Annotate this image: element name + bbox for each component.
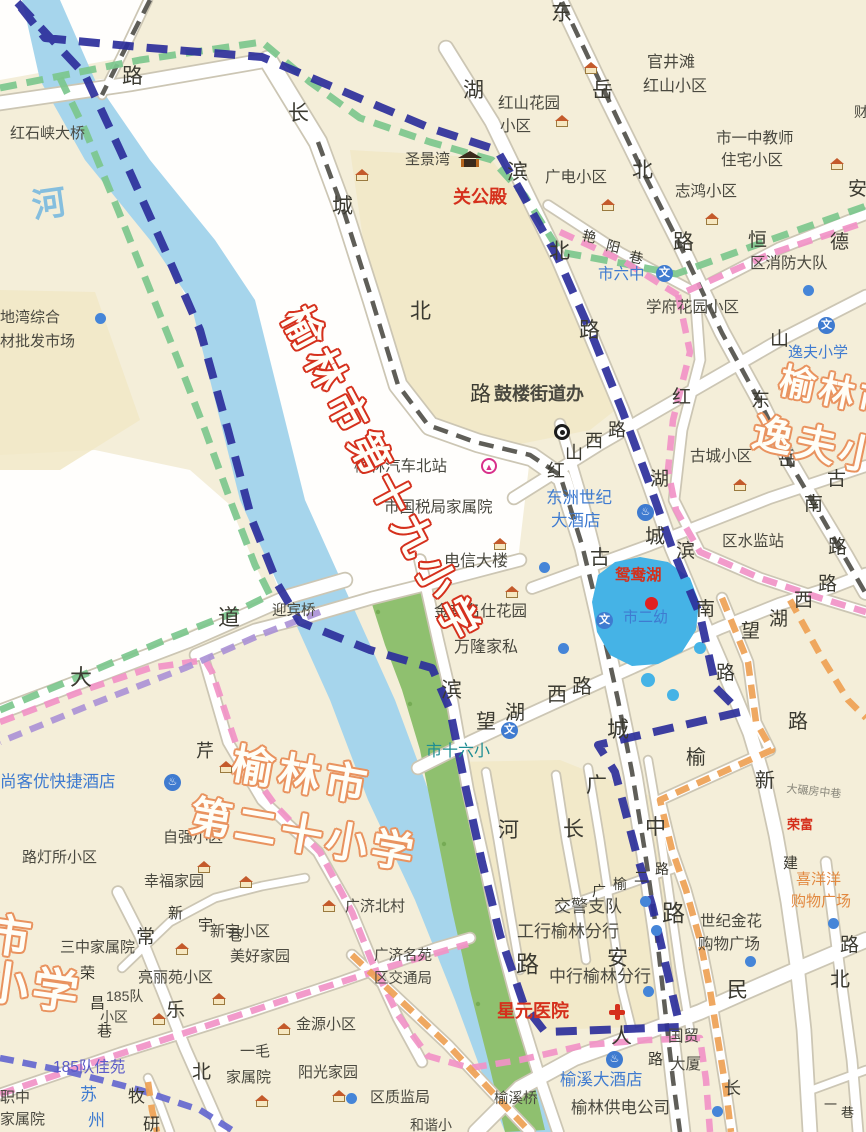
road-name-label: 路 (818, 575, 837, 595)
poi-label: 红石峡大桥 (10, 126, 85, 142)
road-name-label: 长 (288, 103, 309, 125)
building-icon (176, 948, 188, 955)
road-name-label: 湖 (505, 703, 525, 724)
poi-label: 市六中 (598, 267, 645, 283)
poi-label: 幸福家园 (144, 874, 204, 890)
poi-label: 金源小区 (296, 1017, 356, 1033)
hotel-icon: ♨ (606, 1051, 623, 1068)
road-name-label: 湖 (463, 80, 484, 102)
poi-label: 迎宾桥 (272, 604, 316, 619)
poi-label: 阳光家园 (298, 1065, 358, 1081)
road-name-label: 民 (727, 980, 748, 1002)
road-name-label: 城 (607, 718, 629, 741)
school-icon: 文 (596, 612, 613, 629)
building-icon (556, 120, 568, 127)
poi-label: 东洲世纪 (546, 490, 612, 507)
poi-label: 官井滩 (647, 55, 695, 72)
road-name-label: 路 (662, 901, 685, 925)
hospital-cross-icon (609, 1004, 625, 1020)
road-name-label: 望 (476, 712, 496, 733)
road-name-label: 南 (804, 495, 823, 515)
road-name-label: 滨 (441, 680, 462, 702)
building-icon (220, 766, 232, 773)
poi-label: 材批发市场 (0, 334, 75, 350)
road-name-label: 路 (655, 862, 669, 877)
park-texture-dot (376, 610, 380, 614)
building-icon (278, 1028, 290, 1035)
poi-label: 区交通局 (374, 972, 432, 987)
hotel-icon: ♨ (164, 774, 181, 791)
poi-dot (745, 956, 756, 967)
poi-label: 美好家园 (230, 949, 290, 965)
poi-label: 荣富 (787, 818, 813, 832)
road-name-label: 研 (143, 1116, 160, 1132)
road-name-label: 大 (70, 666, 92, 689)
building-icon (585, 67, 597, 74)
school-icon: 文 (501, 722, 518, 739)
road-name-label: 一 (824, 1098, 837, 1112)
road-name-label: 山 (565, 444, 583, 463)
poi-label: 鼓楼街道办 (494, 385, 584, 404)
poi-label: 区消防大队 (750, 256, 828, 272)
poi-label: 和谐小 (410, 1118, 452, 1132)
road-name-label: 巷 (841, 1106, 854, 1120)
building-icon (356, 174, 368, 181)
poi-label: 志鸿小区 (675, 184, 737, 200)
poi-label: 喜洋洋 (796, 872, 841, 888)
poi-dot (558, 643, 569, 654)
road-name-label: 古 (590, 548, 610, 569)
park-texture-dot (408, 702, 412, 706)
road-name-label: 广 (586, 775, 607, 797)
park-texture-dot (442, 842, 446, 846)
poi-label: 三中家属院 (60, 940, 135, 956)
road-name-label: 红 (672, 388, 691, 408)
poi-label: 区质监局 (370, 1090, 430, 1106)
poi-label: 榆溪大酒店 (560, 1072, 643, 1089)
poi-dot (712, 1106, 723, 1117)
lake-pond (667, 689, 679, 701)
lake-pond (694, 642, 706, 654)
poi-label: 河 (30, 185, 69, 225)
road-name-label: 山 (770, 330, 789, 350)
poi-label: 大酒店 (551, 513, 601, 530)
road-name-label: 德 (830, 233, 849, 253)
poi-dot (803, 285, 814, 296)
poi-label: 中行榆林分行 (549, 968, 651, 986)
bus-station-icon: ▲ (481, 458, 497, 474)
poi-label: 家属院 (0, 1112, 45, 1128)
road-name-label: 路 (122, 66, 143, 88)
road-name-label: 人 (611, 1026, 632, 1048)
road-name-label: 路 (828, 538, 847, 558)
poi-label: 榆溪桥 (494, 1092, 538, 1107)
road-name-label: 榆 (686, 748, 706, 769)
building-icon (198, 866, 210, 873)
road-name-label: 路 (788, 712, 808, 733)
road-name-label: 长 (724, 1080, 741, 1098)
road-name-label: 路 (608, 421, 626, 440)
poi-label: 职中 (0, 1090, 30, 1106)
road-name-label: 城 (645, 527, 665, 548)
poi-dot (651, 925, 662, 936)
road-name-label: 牧 (128, 1088, 145, 1106)
road-name-label: 西 (794, 591, 813, 611)
poi-label: 广济北村 (345, 899, 405, 915)
building-icon (256, 1100, 268, 1107)
road-name-label: 长 (563, 819, 584, 841)
road-name-label: 西 (547, 685, 567, 706)
road-name-label: 新 (755, 771, 775, 792)
building-icon (213, 998, 225, 1005)
road-name-label: 巷 (97, 1024, 112, 1040)
road-name-label: 恒 (748, 231, 767, 251)
road-name-label: 路 (516, 952, 539, 976)
road-name-label: 安 (848, 180, 866, 200)
poi-label: 财 (854, 105, 866, 120)
road-name-label: 路 (840, 936, 859, 956)
building-icon (831, 163, 843, 170)
poi-label: 新宇小区 (210, 924, 270, 940)
poi-label: 185队 (106, 989, 143, 1004)
road-name-label: 北 (410, 301, 431, 323)
poi-label: 红山小区 (643, 79, 707, 96)
poi-dot (640, 896, 651, 907)
building-icon (734, 484, 746, 491)
road-name-label: 二 (634, 870, 648, 885)
government-office-icon (554, 424, 570, 440)
road-name-label: 路 (572, 677, 592, 698)
building-icon (240, 881, 252, 888)
poi-label: 购物广场 (791, 894, 851, 910)
poi-label: 亮丽苑小区 (138, 970, 213, 986)
hotel-icon: ♨ (637, 504, 654, 521)
road-name-label: 路 (648, 1052, 663, 1068)
road-name-label: 北 (192, 1063, 211, 1083)
poi-label: 区水监站 (722, 534, 784, 550)
building-icon (494, 543, 506, 550)
poi-label: 185队佳苑 (53, 1060, 125, 1076)
park-texture-dot (476, 1002, 480, 1006)
poi-label: 大厦 (670, 1057, 701, 1073)
poi-label: 国贸 (668, 1029, 699, 1045)
poi-dot (828, 918, 839, 929)
road-name-label: 湖 (769, 610, 788, 630)
building-icon (602, 204, 614, 211)
school-district-overlay-label: 小学 (0, 945, 87, 1024)
building-icon (506, 591, 518, 598)
road-name-label: 路 (579, 320, 600, 342)
building-icon (153, 1018, 165, 1025)
lake-pond (641, 673, 655, 687)
poi-dot (539, 562, 550, 573)
poi-label: 星元医院 (497, 1002, 569, 1021)
poi-label: 小区 (500, 119, 531, 135)
poi-label: 苏 (80, 1086, 97, 1104)
poi-label: 鸳鸯湖 (615, 568, 662, 584)
school-icon: 文 (818, 317, 835, 334)
poi-label: 路灯所小区 (22, 850, 97, 866)
poi-label: 榆林供电公司 (571, 1100, 670, 1117)
city-map[interactable]: 路长城北路东岳北路湖滨北路红山红山西路古城古湖滨南路东岳南路恒德安滨河路城广长中… (0, 0, 866, 1132)
road-name-label: 南 (696, 600, 715, 620)
temple-icon (457, 153, 483, 167)
poi-label: 市二幼 (623, 610, 668, 626)
poi-label: 住宅小区 (721, 153, 783, 169)
road-name-label: 城 (332, 196, 353, 218)
road-name-label: 东 (551, 3, 572, 25)
poi-label: 市十六小 (426, 744, 490, 761)
road-name-label: 湖 (650, 470, 669, 490)
poi-label: 学府花园小区 (646, 300, 739, 316)
poi-dot (643, 986, 654, 997)
road-name-label: 建 (783, 856, 798, 872)
road-name-label: 新 (168, 906, 183, 922)
road-name-label: 西 (585, 432, 603, 451)
road-name-label: 北 (632, 160, 653, 182)
poi-label: 一毛 (240, 1044, 270, 1060)
poi-label: 购物广场 (698, 937, 760, 953)
road-name-label: 望 (741, 622, 760, 642)
road-name-label: 河 (498, 820, 519, 842)
poi-label: 工行榆林分行 (517, 923, 619, 941)
road-name-label: 中 (645, 817, 666, 839)
road-name-label: 芹 (196, 742, 214, 761)
building-icon (333, 1095, 345, 1102)
poi-label: 尚客优快捷酒店 (0, 774, 116, 791)
road-name-label: 北 (549, 241, 570, 263)
poi-label: 圣景湾 (405, 152, 450, 168)
poi-label: 世纪金花 (700, 914, 762, 930)
poi-label: 小区 (100, 1010, 128, 1025)
poi-label: 地湾综合 (0, 310, 60, 326)
building-icon (706, 218, 718, 225)
lake-marker-dot (645, 597, 658, 610)
road-name-label: 路 (673, 232, 694, 254)
road-name-label: 红 (547, 462, 565, 481)
poi-label: 交警支队 (554, 898, 622, 916)
road-name-label: 滨 (507, 162, 528, 184)
road-name-label: 北 (830, 970, 850, 991)
poi-label: 古城小区 (690, 449, 752, 465)
road-name-label: 路 (470, 384, 491, 406)
road-name-label: 路 (716, 664, 735, 684)
poi-dot (346, 1093, 357, 1104)
poi-label: 州 (88, 1112, 105, 1130)
school-icon: 文 (656, 265, 673, 282)
road-name-label: 滨 (676, 542, 695, 562)
road-name-label: 乐 (166, 1001, 185, 1021)
poi-label: 广电小区 (545, 170, 607, 186)
road-name-label: 常 (136, 928, 155, 948)
building-icon (323, 905, 335, 912)
poi-label: 市一中教师 (716, 131, 794, 147)
poi-label: 家属院 (226, 1070, 271, 1086)
road-name-label: 榆 (613, 877, 627, 892)
road-name-label: 岳 (592, 80, 613, 102)
poi-label: 关公殿 (453, 188, 507, 207)
poi-label: 广济名苑 (374, 949, 432, 964)
road-name-label: 道 (218, 606, 240, 629)
poi-dot (95, 313, 106, 324)
poi-label: 红山花园 (498, 96, 560, 112)
